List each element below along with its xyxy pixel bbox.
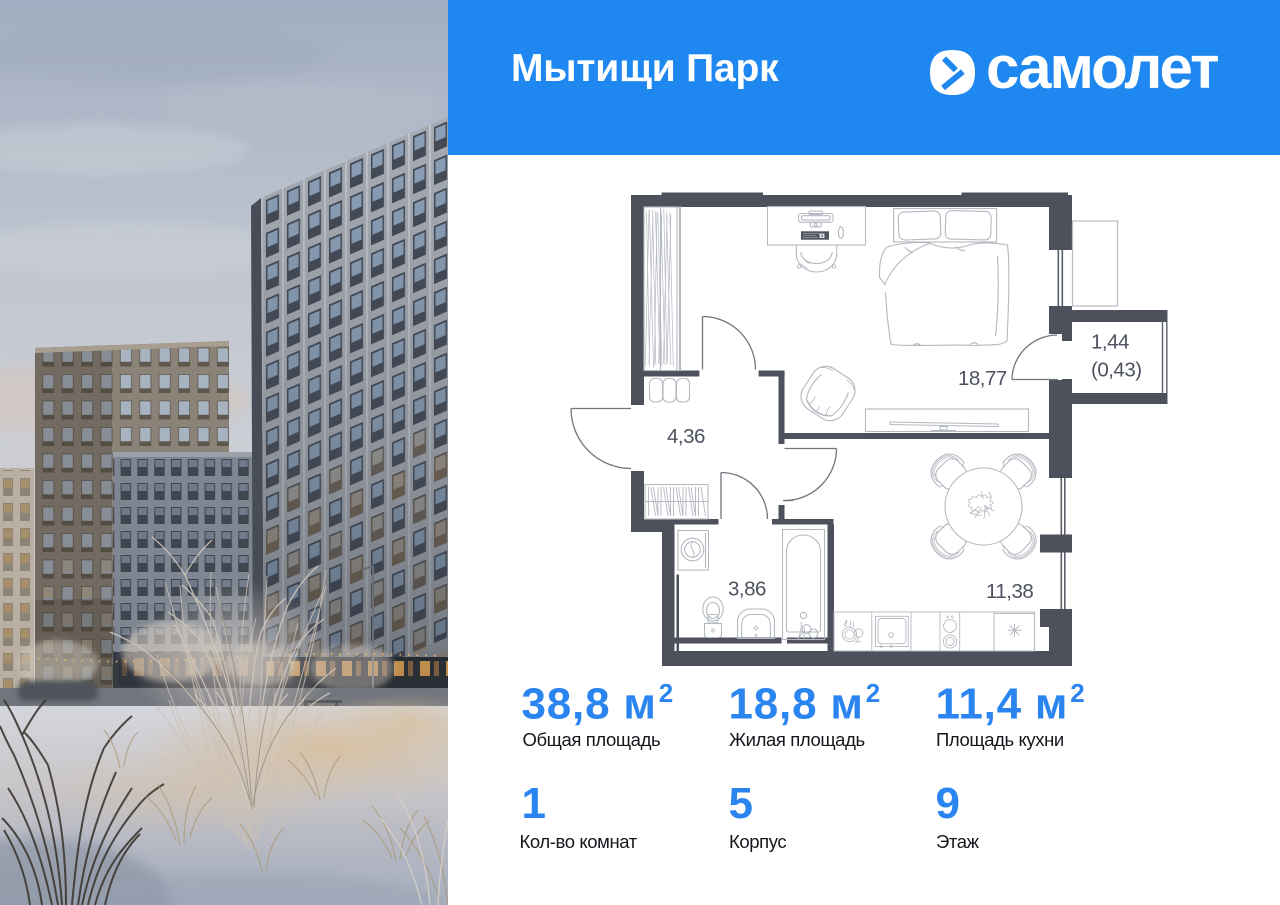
svg-text:1,44: 1,44 xyxy=(1091,331,1129,354)
svg-text:11,38: 11,38 xyxy=(986,580,1033,603)
svg-text:(0,43): (0,43) xyxy=(1091,359,1142,382)
svg-text:3,86: 3,86 xyxy=(728,578,766,601)
svg-text:18,77: 18,77 xyxy=(958,367,1007,390)
svg-text:4,36: 4,36 xyxy=(667,425,705,448)
